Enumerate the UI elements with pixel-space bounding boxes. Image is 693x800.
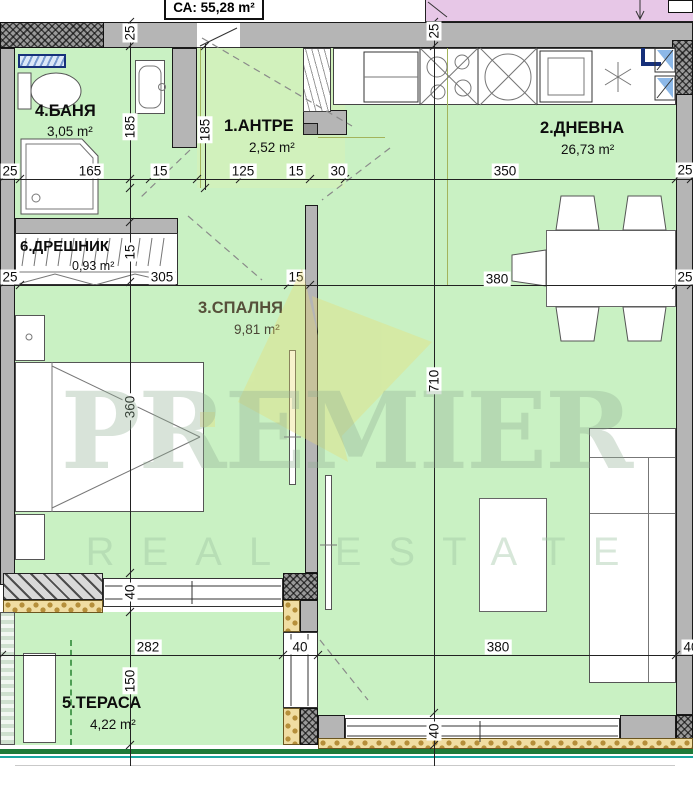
room-label-dnevna: 2.ДНЕВНА: [540, 119, 624, 138]
room-area-dnevna: 26,73 m²: [561, 142, 614, 157]
dining-chairs: [512, 196, 666, 341]
dim-label: 350: [492, 164, 519, 179]
dim-label: 25: [0, 164, 19, 179]
dim-label: 40: [290, 640, 309, 655]
dim-label: 305: [149, 270, 176, 285]
dim-label: 25: [675, 163, 693, 178]
datum-h-top: [0, 179, 693, 180]
room-area-terasa: 4,22 m²: [90, 717, 136, 732]
boiler-icon: [605, 62, 631, 92]
room-label-banya: 4.БАНЯ: [35, 102, 96, 121]
kitchen-sink: [480, 48, 537, 105]
dim-label: 165: [77, 164, 104, 179]
dim-label: 30: [328, 164, 347, 179]
dim-label: 25: [123, 23, 138, 42]
washbasin-detail: [139, 66, 166, 108]
dim-label: 25: [427, 21, 442, 40]
dim-label: 185: [198, 117, 213, 144]
room-area-banya: 3,05 m²: [47, 124, 93, 139]
door-swings: [140, 38, 390, 700]
dim-label: 40: [123, 582, 138, 601]
datum-h-middle: [0, 285, 693, 286]
dishwasher: [540, 51, 592, 102]
dim-label: 380: [484, 272, 511, 287]
floor-plan: 25 165 15 125 15 30 350 25 25 305 15 380…: [0, 0, 693, 800]
dim-label: 360: [123, 394, 138, 421]
window-frames: [105, 581, 618, 742]
datum-h-bottom: [0, 655, 693, 656]
room-area-antre: 2,52 m²: [249, 140, 295, 155]
dim-label: 15: [150, 164, 169, 179]
dim-label: 282: [135, 640, 162, 655]
dim-label: 25: [675, 270, 693, 285]
dim-label: 125: [230, 164, 257, 179]
room-label-terasa: 5.ТЕРАСА: [62, 694, 141, 713]
room-label-dreshnik: 6.ДРЕШНИК: [20, 238, 109, 255]
dim-label: 40: [427, 721, 442, 740]
duct-symbols: [643, 48, 675, 100]
dim-label: 380: [485, 640, 512, 655]
room-label-antre: 1.АНТРЕ: [224, 117, 294, 136]
dim-label: 25: [0, 270, 19, 285]
total-area-box: СА: 55,28 m²: [164, 0, 264, 20]
dim-label: 15: [123, 242, 138, 261]
room-label-spalnya: 3.СПАЛНЯ: [198, 299, 283, 318]
adjacent-arrow-icon: [428, 0, 644, 19]
dim-label: 150: [123, 668, 138, 695]
dim-label: 15: [286, 270, 305, 285]
room-area-dreshnik: 0,93 m²: [72, 259, 114, 273]
fridge: [364, 52, 418, 102]
stove: [420, 48, 478, 105]
room-area-spalnya: 9,81 m²: [234, 322, 280, 337]
dim-label: 710: [427, 368, 442, 395]
dim-label: 40: [681, 640, 693, 655]
bed-symbol: [26, 334, 200, 512]
dim-label: 15: [286, 164, 305, 179]
dim-label: 185: [123, 114, 138, 141]
